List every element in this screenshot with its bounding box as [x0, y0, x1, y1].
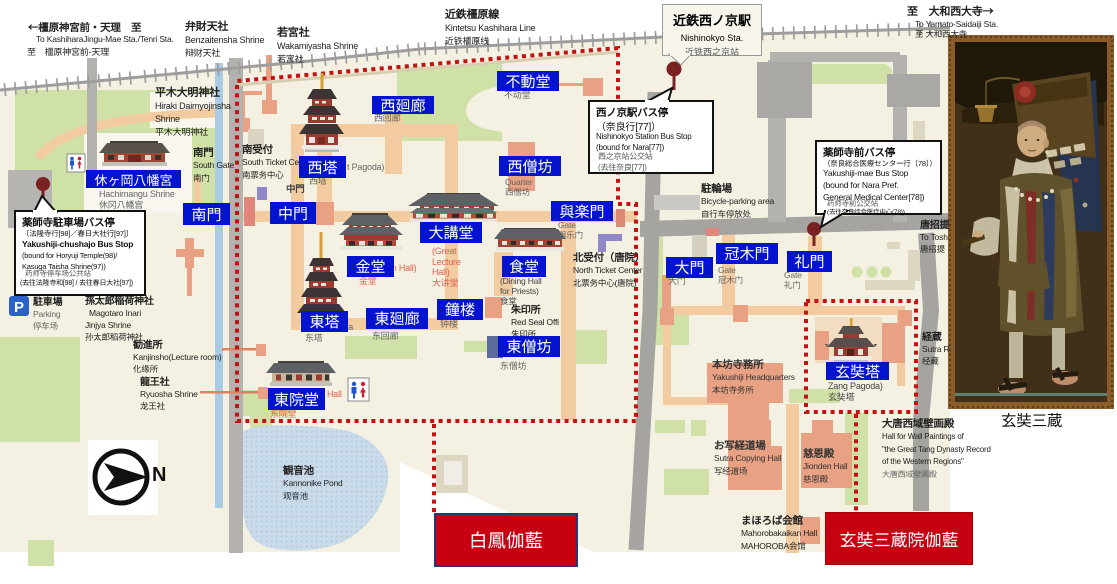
- svg-text:P: P: [14, 299, 24, 316]
